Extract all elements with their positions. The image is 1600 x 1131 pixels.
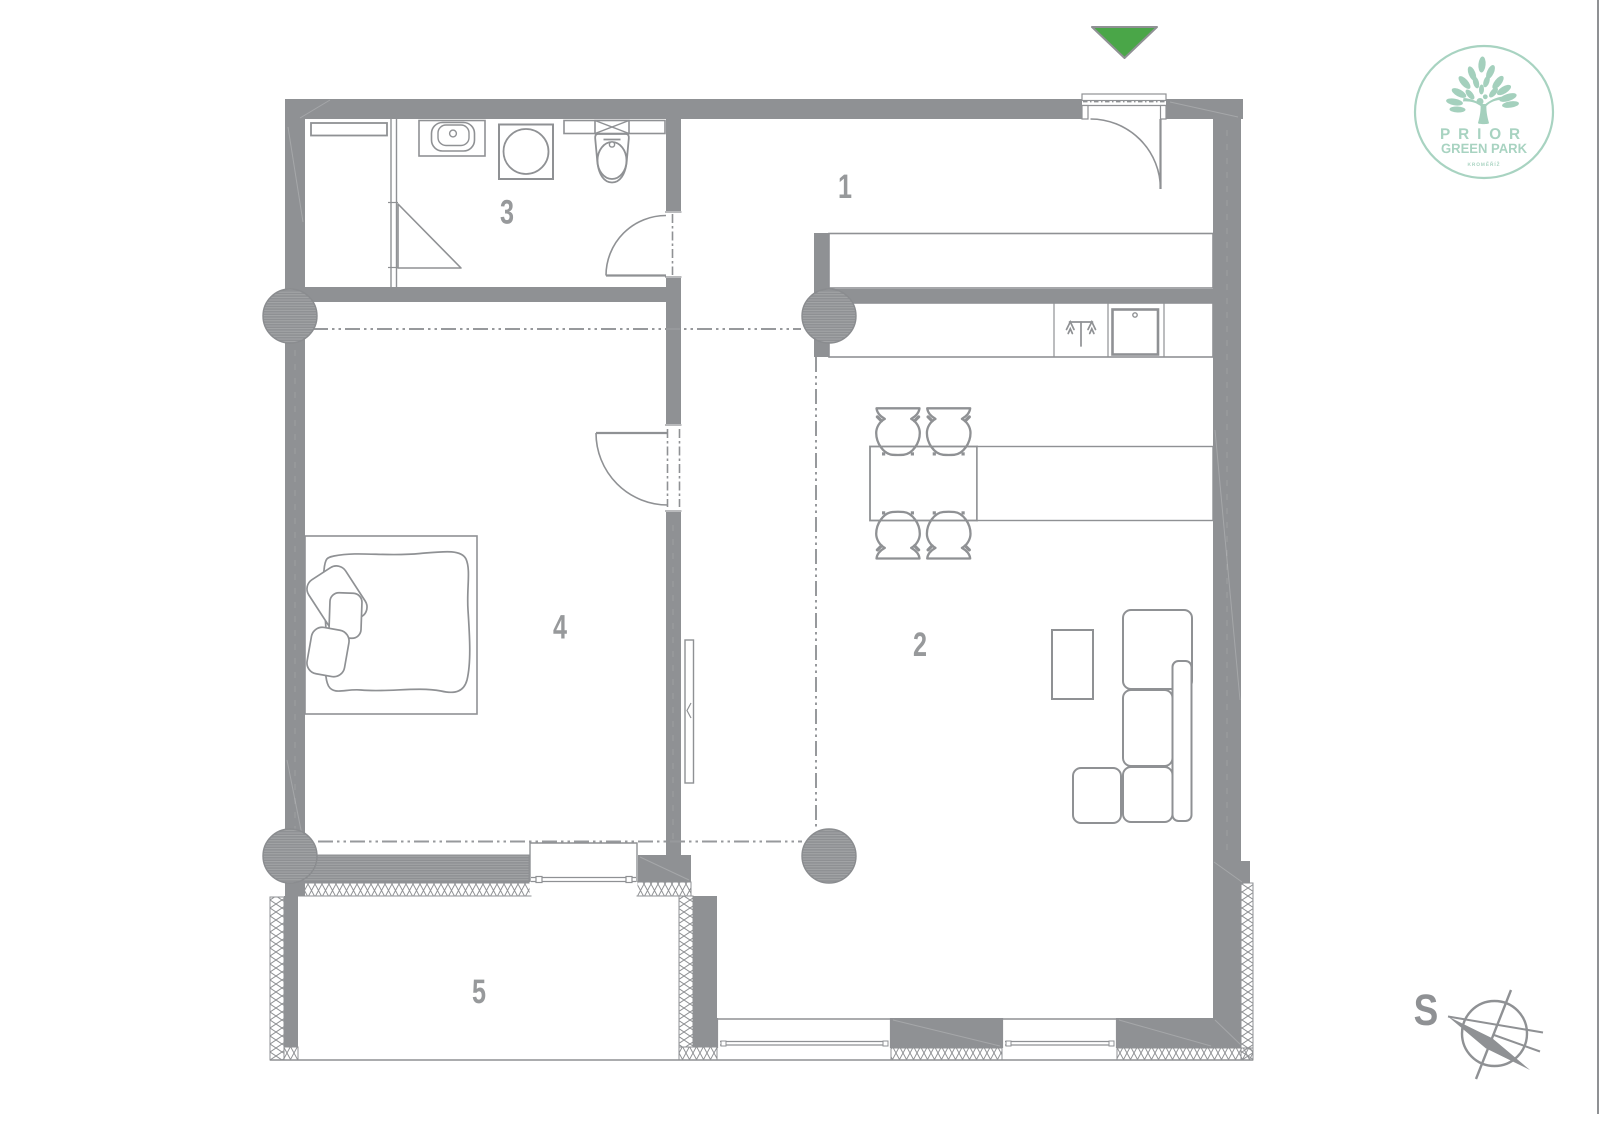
svg-text:3: 3 [500,194,514,232]
svg-text:4: 4 [553,609,567,647]
svg-text:GREEN PARK: GREEN PARK [1441,141,1527,156]
svg-text:2: 2 [913,626,927,664]
svg-text:KROMĚŘÍŽ: KROMĚŘÍŽ [1468,161,1501,168]
svg-text:S: S [1414,986,1439,1035]
svg-text:1: 1 [838,168,852,206]
svg-text:5: 5 [472,973,486,1011]
